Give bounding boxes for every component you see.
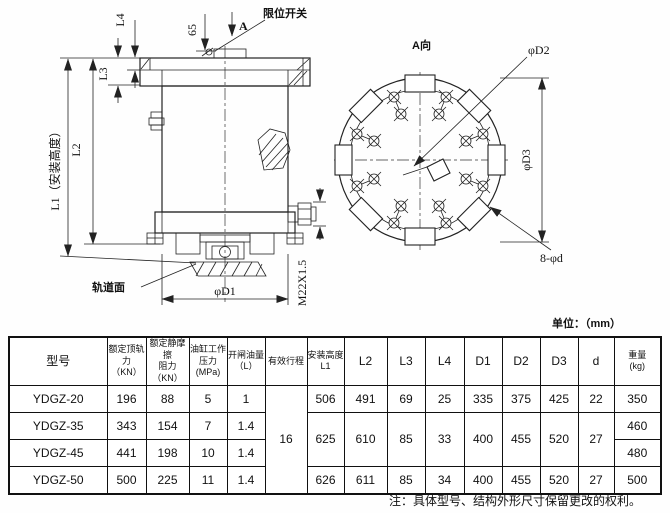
bolt-holes-label: 8-φd (540, 251, 563, 265)
footnote: 注：具体型号、结构外形尺寸保留更改的权利。 (389, 492, 641, 509)
thread-label: M22X1.5 (295, 260, 309, 306)
cell-weight: 480 (614, 439, 661, 466)
col-header-weight: 重量 (kg) (614, 337, 661, 385)
cell-d1: 400 (464, 466, 502, 494)
col-header-d: d (578, 337, 614, 385)
col-header-l3: L3 (387, 337, 425, 385)
col-header-d2: D2 (502, 337, 540, 385)
cell-l4: 25 (425, 385, 464, 412)
port-fitting (288, 203, 316, 225)
cell-oil: 1.4 (227, 412, 265, 439)
col-header-effective-stroke: 有效行程 (265, 337, 307, 385)
cell-force: 500 (107, 466, 146, 494)
cell-friction: 198 (146, 439, 189, 466)
cell-l2: 610 (344, 412, 387, 466)
cell-friction: 225 (146, 466, 189, 494)
dim-label-l1: L1（安装高度） (47, 125, 62, 210)
cell-friction: 154 (146, 412, 189, 439)
rail-plate (190, 262, 266, 276)
col-header-d1: D1 (464, 337, 502, 385)
hatched-plug (258, 129, 290, 170)
dim-label-d3: φD3 (519, 149, 533, 171)
cell-l1: 625 (307, 412, 344, 466)
col-header-oil-volume: 开闸油量 （L） (227, 337, 265, 385)
cell-pressure: 5 (189, 385, 227, 412)
cell-model: YDGZ-45 (9, 439, 107, 466)
rail-surface-label: 轨道面 (92, 280, 125, 294)
col-header-static-friction: 额定静摩擦 阻力 （KN） (146, 337, 189, 385)
cell-effective-stroke: 16 (265, 385, 307, 494)
cell-l1: 626 (307, 466, 344, 494)
col-header-cylinder-pressure: 油缸工作 压力(MPa) (189, 337, 227, 385)
col-header-l4: L4 (425, 337, 464, 385)
cell-d: 22 (578, 385, 614, 412)
table-row: YDGZ-35 343 154 7 1.4 625 610 85 33 400 … (9, 412, 661, 439)
center-lever (403, 159, 450, 181)
dim-label-l4: L4 (113, 13, 127, 26)
col-header-l2: L2 (344, 337, 387, 385)
dim-label-l3: L3 (96, 67, 110, 80)
cell-l2: 611 (344, 466, 387, 494)
cell-force: 441 (107, 439, 146, 466)
cell-weight: 500 (614, 466, 661, 494)
cell-pressure: 7 (189, 412, 227, 439)
cell-model: YDGZ-50 (9, 466, 107, 494)
engineering-drawing: L1（安装高度） L2 L3 L4 65 A 限位开关 轨道面 φD1 (0, 0, 670, 334)
limit-switch-shape (202, 48, 246, 58)
cell-l1: 506 (307, 385, 344, 412)
cell-l3: 85 (387, 412, 425, 466)
cell-friction: 88 (146, 385, 189, 412)
cell-l4: 33 (425, 412, 464, 466)
col-header-model: 型号 (9, 337, 107, 385)
cell-l4: 34 (425, 466, 464, 494)
dim-label-65: 65 (185, 24, 199, 36)
col-header-d3: D3 (540, 337, 578, 385)
dim-label-d2: φD2 (528, 43, 550, 57)
header-row: 型号 额定顶轨力 （KN） 额定静摩擦 阻力 （KN） 油缸工作 压力(MPa)… (9, 337, 661, 385)
a-view-title: A向 (412, 38, 431, 52)
cell-d2: 455 (502, 466, 540, 494)
cell-d2: 375 (502, 385, 540, 412)
technical-drawing-page: L1（安装高度） L2 L3 L4 65 A 限位开关 轨道面 φD1 (0, 0, 670, 513)
col-header-install-height: 安装高度 L1 (307, 337, 344, 385)
cell-oil: 1.4 (227, 439, 265, 466)
cell-d: 27 (578, 412, 614, 466)
cell-force: 196 (107, 385, 146, 412)
col-header-rated-rail-force: 额定顶轨力 （KN） (107, 337, 146, 385)
section-arrow-label: A (239, 19, 248, 33)
cell-model: YDGZ-20 (9, 385, 107, 412)
cell-pressure: 11 (189, 466, 227, 494)
cell-oil: 1.4 (227, 466, 265, 494)
cell-l2: 491 (344, 385, 387, 412)
limit-switch-label: 限位开关 (263, 6, 307, 20)
dim-label-l2: L2 (69, 143, 83, 156)
cell-model: YDGZ-35 (9, 412, 107, 439)
cell-weight: 350 (614, 385, 661, 412)
cell-pressure: 10 (189, 439, 227, 466)
cell-oil: 1 (227, 385, 265, 412)
table-row: YDGZ-50 500 225 11 1.4 626 611 85 34 400… (9, 466, 661, 494)
cell-d2: 455 (502, 412, 540, 466)
cell-d3: 520 (540, 466, 578, 494)
a-view-drawing: A向 (334, 38, 563, 265)
table-row: YDGZ-20 196 88 5 1 16 506 491 69 25 335 … (9, 385, 661, 412)
cell-d3: 425 (540, 385, 578, 412)
cell-l3: 85 (387, 466, 425, 494)
cell-d: 27 (578, 466, 614, 494)
cell-weight: 460 (614, 412, 661, 439)
cell-l3: 69 (387, 385, 425, 412)
units-label: 单位：（mm） (552, 315, 621, 331)
cell-force: 343 (107, 412, 146, 439)
spec-table: 型号 额定顶轨力 （KN） 额定静摩擦 阻力 （KN） 油缸工作 压力(MPa)… (8, 336, 662, 495)
side-view-drawing: L1（安装高度） L2 L3 L4 65 A 限位开关 轨道面 φD1 (47, 6, 326, 306)
cell-d1: 400 (464, 412, 502, 466)
dim-label-d1: φD1 (214, 284, 236, 298)
cell-d1: 335 (464, 385, 502, 412)
cell-d3: 520 (540, 412, 578, 466)
